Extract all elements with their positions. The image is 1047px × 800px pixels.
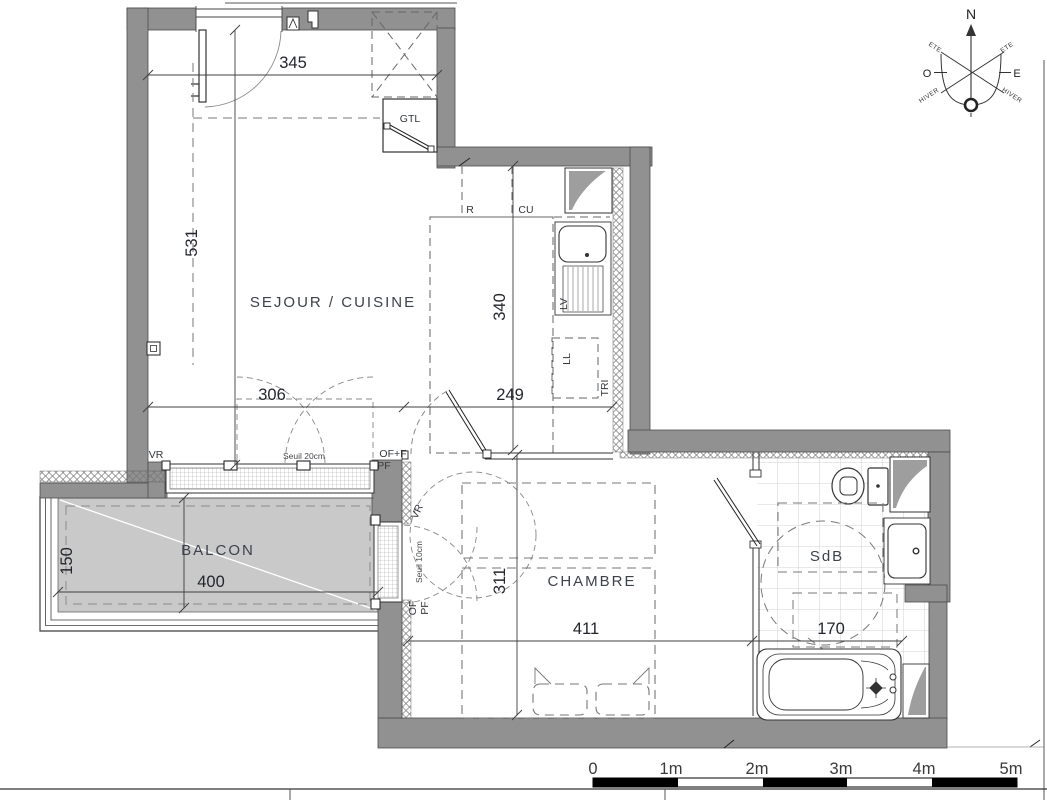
- sdb-partition: [714, 452, 761, 716]
- compass-winter-se: HIVER: [1001, 87, 1024, 105]
- label-washer: LL: [561, 353, 573, 365]
- label-threshold-chambre: Seuil 10cm: [414, 541, 424, 583]
- dim-south-left: 306: [258, 386, 286, 404]
- sdb-door-leaf: [714, 478, 760, 546]
- doorbell-icon: [287, 17, 299, 30]
- label-fridge: R: [466, 204, 474, 216]
- chambre-furniture: [462, 483, 655, 718]
- kitchen-worktop-reservation: [430, 217, 553, 453]
- pillow-right: [596, 684, 649, 715]
- scale-tick-1: 1m: [660, 760, 683, 778]
- label-window-type-sejour: OF+F: [379, 448, 406, 460]
- scale-tick-2: 2m: [746, 760, 769, 778]
- sun-icon: [965, 99, 977, 111]
- scale-bar: 0 1m 2m 3m 4m 5m: [588, 760, 1022, 787]
- compass-rose: N O E ETE ETE HIVER HIVER: [918, 6, 1023, 117]
- tub-side-shaft: [903, 664, 929, 718]
- north-arrow-icon: [966, 24, 976, 36]
- gtl-closet: [372, 12, 437, 152]
- dim-sejour-height: 531: [183, 229, 201, 257]
- entry-door-swing-arc: [205, 31, 281, 107]
- bathtub-fixture: [757, 649, 901, 720]
- dim-kitchen-depth: 340: [491, 293, 509, 321]
- label-dishwasher: LV: [558, 298, 570, 310]
- wardrobe-reservation: [462, 483, 655, 558]
- room-label-sdb: SdB: [810, 548, 844, 565]
- dim-sdb-width: 170: [817, 620, 845, 638]
- room-label-balcon: BALCON: [181, 542, 255, 559]
- floor-plan-drawing: 345 531 340 306 249 311 411 170 400 150 …: [0, 0, 1047, 800]
- dim-balcon-depth: 150: [58, 547, 76, 575]
- label-shutter-chambre: VR: [409, 502, 426, 521]
- label-sorting: TRI: [599, 380, 611, 397]
- scale-tick-4: 4m: [913, 760, 936, 778]
- label-window-type-chambre: OF: [407, 601, 419, 616]
- washer-reservation: [552, 338, 598, 398]
- compass-summer-ne: ETE: [999, 41, 1015, 55]
- compass-north: N: [966, 6, 976, 22]
- interior-door-swing-arc: [411, 391, 447, 454]
- door-handle-icon: [191, 84, 199, 96]
- compass-summer-nw: ETE: [927, 41, 943, 55]
- compass-west: O: [923, 68, 932, 80]
- label-cooktop: CU: [518, 204, 533, 216]
- entry-door-leaf: [199, 30, 206, 102]
- label-gtl: GTL: [400, 113, 421, 125]
- dim-chambre-height: 311: [491, 568, 509, 594]
- dim-south-right: 249: [496, 386, 524, 404]
- room-label-sejour: SEJOUR / CUISINE: [250, 294, 416, 311]
- dim-sejour-width: 345: [279, 54, 307, 72]
- dim-chambre-width: 411: [573, 620, 599, 638]
- scale-tick-5: 5m: [1000, 760, 1023, 778]
- washbasin-fixture: [884, 518, 930, 584]
- compass-east: E: [1013, 68, 1020, 80]
- entry-closet-reservation: [193, 63, 380, 365]
- dim-balcon-width: 400: [197, 573, 225, 591]
- chambre-window-swing-arcs: [401, 525, 477, 603]
- room-label-chambre: CHAMBRE: [547, 573, 636, 590]
- sdb-corner-shaft: [890, 457, 930, 512]
- label-window-type2-chambre: PF: [419, 601, 431, 614]
- wall-outlet-icon: [147, 342, 160, 355]
- scale-tick-3: 3m: [830, 760, 853, 778]
- kitchen-shaft: [565, 168, 612, 213]
- scale-tick-0: 0: [588, 760, 597, 778]
- label-shutter-sejour: VR: [149, 449, 164, 461]
- label-threshold-sejour: Seuil 20cm: [283, 451, 325, 461]
- compass-winter-sw: HIVER: [918, 87, 941, 105]
- floor-plan-page: 345 531 340 306 249 311 411 170 400 150 …: [0, 0, 1047, 800]
- pillow-left: [533, 684, 587, 715]
- label-window-type2-sejour: PF: [377, 460, 390, 472]
